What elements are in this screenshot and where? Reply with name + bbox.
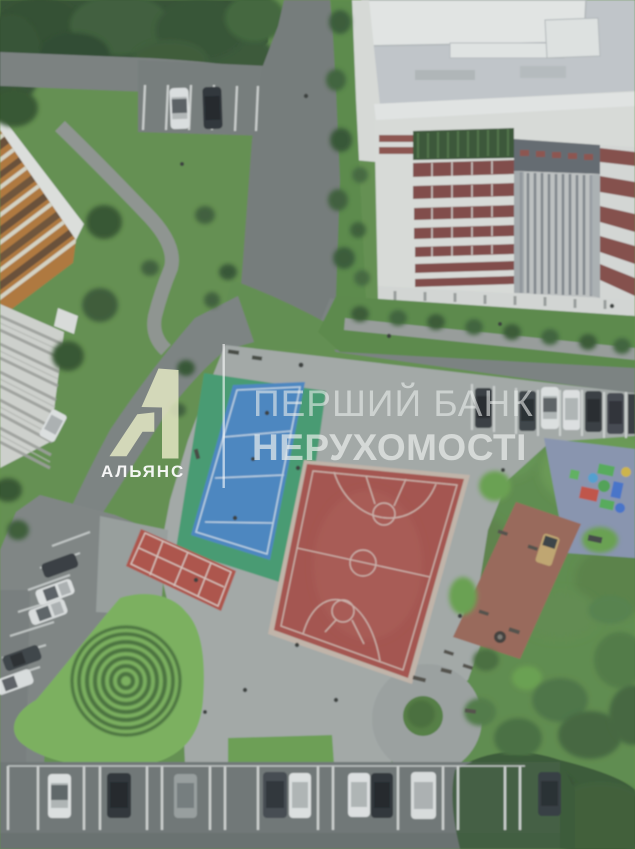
svg-text:НЕРУХОМОСТІ: НЕРУХОМОСТІ: [252, 427, 527, 468]
svg-text:ПЕРШИЙ БАНК: ПЕРШИЙ БАНК: [253, 382, 534, 424]
svg-text:АЛЬЯНС: АЛЬЯНС: [101, 462, 185, 481]
